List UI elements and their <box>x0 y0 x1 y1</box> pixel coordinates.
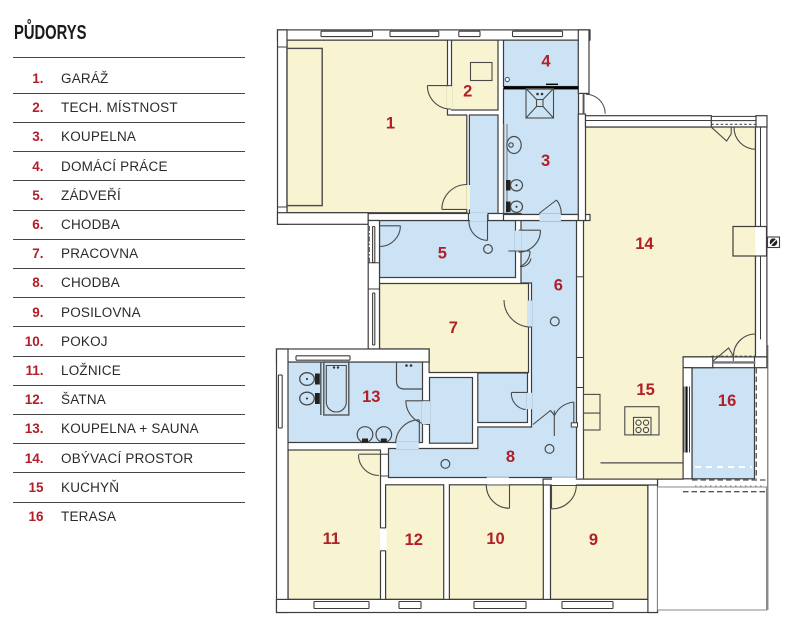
svg-text:15: 15 <box>636 381 654 399</box>
svg-text:12: 12 <box>405 531 423 549</box>
svg-text:6: 6 <box>554 276 563 294</box>
svg-text:10: 10 <box>486 530 504 548</box>
svg-text:5: 5 <box>438 245 447 263</box>
svg-text:14: 14 <box>635 235 654 253</box>
svg-text:7: 7 <box>449 319 458 337</box>
svg-text:2: 2 <box>463 82 472 100</box>
svg-text:11: 11 <box>323 530 340 548</box>
svg-text:16: 16 <box>718 392 736 410</box>
svg-text:1: 1 <box>386 114 395 132</box>
svg-text:3: 3 <box>541 152 550 170</box>
svg-text:8: 8 <box>506 448 515 466</box>
svg-text:9: 9 <box>589 531 598 549</box>
svg-text:4: 4 <box>541 53 551 71</box>
svg-text:13: 13 <box>362 388 380 406</box>
